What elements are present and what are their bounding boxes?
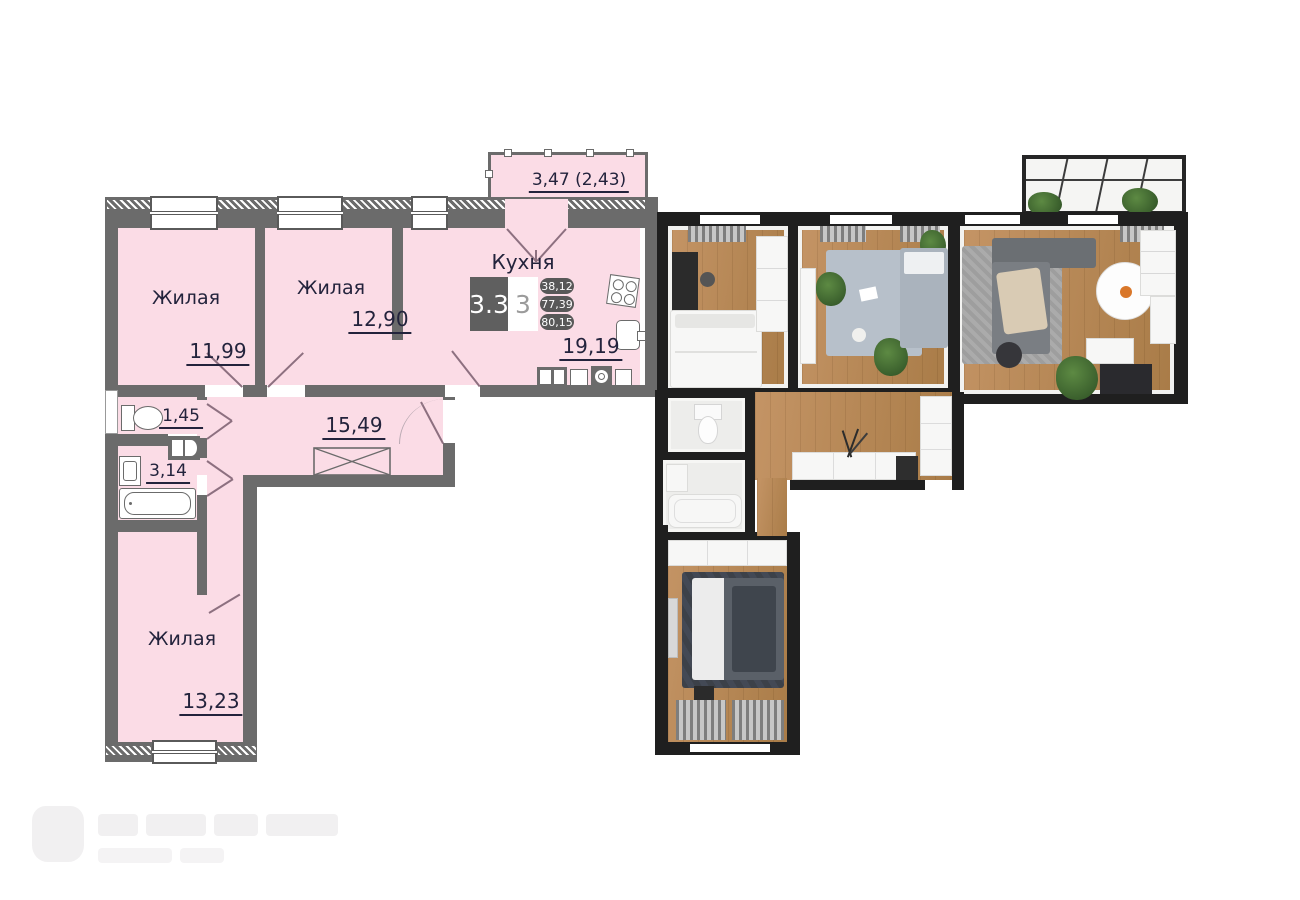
render-wall-hall-bottom bbox=[790, 480, 925, 490]
balcony-mullion bbox=[626, 149, 634, 157]
area-pill-2: 77,39 bbox=[540, 296, 574, 312]
render-curtain bbox=[688, 226, 746, 242]
wash-basin-icon bbox=[119, 456, 141, 486]
render-curtain bbox=[820, 226, 866, 242]
kitchen-area: 19,19 bbox=[559, 334, 622, 361]
area-pill-1: 38,12 bbox=[540, 278, 574, 294]
room3-label: Жилая bbox=[148, 628, 216, 650]
area-pill-3: 80,15 bbox=[540, 314, 574, 330]
stove-icon bbox=[606, 274, 640, 308]
render-window-slit bbox=[965, 215, 1020, 224]
wall-left bbox=[105, 210, 118, 760]
render-door-mat bbox=[896, 456, 918, 480]
render-wall-b12 bbox=[788, 226, 798, 388]
balcony-mullion bbox=[586, 149, 594, 157]
counter2-icon bbox=[615, 369, 632, 386]
layout-code-badge: 3.3 bbox=[470, 277, 508, 331]
render-island bbox=[1086, 338, 1134, 364]
wall-entry-bottom bbox=[443, 443, 455, 487]
window-room2 bbox=[277, 196, 343, 230]
wall-hall-bottom bbox=[243, 475, 455, 487]
watermark-text-line2 bbox=[98, 848, 172, 863]
washing-machine-icon bbox=[591, 366, 612, 388]
watermark-text-line1 bbox=[266, 814, 338, 836]
floorplan-screenshot: 3,47 (2,43) bbox=[0, 0, 1300, 900]
water-heater-circ bbox=[185, 440, 197, 456]
room1-area: 11,99 bbox=[186, 339, 249, 366]
watermark-text-line2 bbox=[180, 848, 224, 863]
render-wall-san-mid bbox=[655, 452, 755, 460]
render-bed1 bbox=[670, 310, 762, 388]
wall-bottom-hatch-l bbox=[106, 746, 151, 755]
counter-icon bbox=[570, 369, 588, 386]
wall-kitchen-bottom-a bbox=[392, 385, 445, 397]
render-bathtub bbox=[668, 494, 742, 528]
render-pouf bbox=[996, 342, 1022, 368]
wall-kitchen-bottom-b bbox=[480, 385, 658, 397]
wall-rooms-bottom-b bbox=[243, 385, 267, 397]
wall-wc-bath-right-c bbox=[197, 495, 207, 530]
bathtub-icon bbox=[119, 488, 196, 519]
room3-area: 13,23 bbox=[179, 689, 242, 716]
render-bed3-duvet bbox=[724, 578, 784, 680]
kitchen-label: Кухня bbox=[492, 250, 555, 274]
render-toilet-bowl bbox=[698, 416, 718, 444]
render-dry-plant bbox=[840, 428, 866, 458]
wall-block3-right bbox=[243, 477, 257, 762]
render-window-slit bbox=[690, 744, 770, 752]
watermark-text-line1 bbox=[146, 814, 206, 836]
wall-bottom-hatch-r bbox=[218, 746, 256, 755]
render-wardrobe1 bbox=[756, 236, 788, 332]
water-heater-sq bbox=[172, 440, 183, 456]
render-curtain bbox=[676, 700, 726, 740]
watermark-text-line1 bbox=[98, 814, 138, 836]
render-plant bbox=[816, 272, 846, 306]
render-plant-balcony-r bbox=[1122, 188, 1158, 214]
watermark-logo bbox=[32, 806, 84, 862]
render-wall-b23 bbox=[948, 226, 960, 392]
render-hall-strip bbox=[757, 478, 787, 536]
room1-label: Жилая bbox=[152, 287, 220, 309]
render-window-slit bbox=[830, 215, 892, 224]
wall-wc-bath-mid bbox=[118, 434, 168, 446]
wall-room1-room2 bbox=[255, 225, 265, 387]
wall-bath-bottom bbox=[105, 520, 197, 532]
balcony-door-opening bbox=[505, 199, 568, 228]
render-console2 bbox=[800, 268, 816, 364]
wall-strip-left bbox=[197, 530, 207, 595]
render-bath-sink bbox=[666, 464, 688, 492]
render-wall-b3-left bbox=[655, 525, 668, 755]
bathroom-area: 3,14 bbox=[146, 461, 190, 484]
room-count-badge: 3 bbox=[508, 277, 538, 331]
render-window-slit bbox=[1068, 215, 1118, 224]
wall-rooms-bottom-a bbox=[118, 385, 205, 397]
render-stool bbox=[852, 328, 866, 342]
render-wall-b3-right bbox=[787, 535, 800, 755]
hallway-area: 15,49 bbox=[322, 413, 385, 440]
render-bed2 bbox=[900, 248, 948, 348]
render-dark-niche bbox=[1100, 364, 1152, 394]
balcony-area-label: 3,47 (2,43) bbox=[529, 170, 629, 193]
render-kitchen-lower bbox=[1150, 296, 1176, 344]
wall-wc-bath-right-a bbox=[197, 397, 207, 400]
balcony-mullion bbox=[504, 149, 512, 157]
render-hall-closet bbox=[920, 396, 952, 476]
render-chair bbox=[700, 272, 715, 287]
window-room1 bbox=[150, 196, 218, 230]
render-kitchen-cabinets bbox=[1140, 230, 1176, 296]
wall-rooms-bottom-c bbox=[305, 385, 392, 397]
wardrobe-cross bbox=[313, 447, 391, 476]
fridge-icon bbox=[537, 367, 567, 387]
wall-left-niche bbox=[105, 390, 118, 434]
window-room3 bbox=[152, 740, 217, 764]
render-wall-hall-right bbox=[952, 392, 964, 490]
render-wall-right bbox=[1174, 212, 1188, 404]
room2-label: Жилая bbox=[297, 277, 365, 299]
balcony-mullion bbox=[485, 170, 493, 178]
render-bed3-sheets bbox=[692, 578, 724, 680]
window-kitchen bbox=[411, 196, 448, 230]
room2-area: 12,90 bbox=[348, 307, 411, 334]
render-wall-san-right bbox=[745, 392, 755, 535]
wc-area: 1,45 bbox=[159, 406, 203, 429]
render-curtain bbox=[732, 700, 784, 740]
render-window-slit bbox=[700, 215, 760, 224]
render-sofa-blanket bbox=[996, 267, 1048, 335]
render-picture-frame bbox=[668, 598, 678, 658]
watermark-text-line1 bbox=[214, 814, 258, 836]
balcony-mullion bbox=[544, 149, 552, 157]
render-plant bbox=[1056, 356, 1098, 400]
render-wardrobe3 bbox=[668, 540, 787, 566]
